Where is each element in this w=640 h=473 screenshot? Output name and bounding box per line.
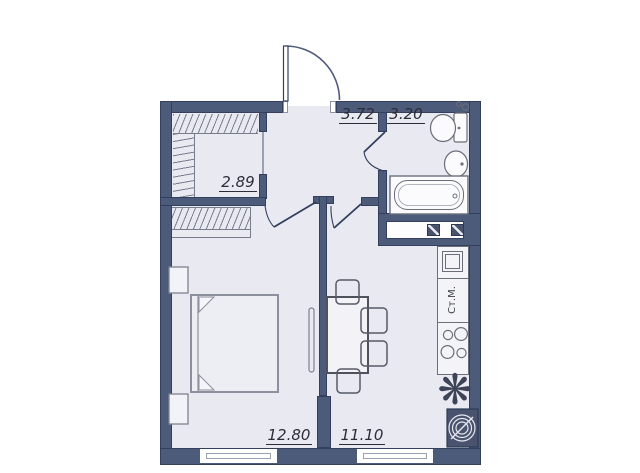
bedroom-window-frame [206,453,271,459]
label-bedroom-area: 12.80 [260,426,318,444]
label-dressing-room-area: 2.89 [211,173,265,191]
entry-jamb-left [283,101,288,113]
wall-mid-left [160,197,266,206]
wall-room-divider-lower [317,396,331,448]
dressing-door-line [262,132,264,174]
wardrobe-rail-left [173,134,195,200]
label-washing-machine: Ст.М. [447,270,459,330]
wall-dressing-right-top [259,112,267,132]
label-kitchen-area: 11.10 [333,426,391,444]
wall-right [469,101,481,465]
kitchen-window-frame [363,453,427,459]
label-bathroom-area: 3.20 [379,105,433,123]
entry-door-icon [284,46,340,101]
wardrobe-rail-left-edge [194,134,195,198]
bedroom-wardrobe-hatch [169,208,250,229]
kitchen-sink-cabinet-inner [445,254,460,269]
label-hallway-area: 3.72 [331,105,385,123]
floor-plan: ❋ [0,0,640,473]
wardrobe-rail-top [173,114,258,134]
vent-icon [451,224,464,236]
wall-left [160,101,172,465]
wall-room-divider-upper [319,196,327,396]
bedroom-wardrobe-shelf [168,229,251,230]
vent-icon [427,224,440,236]
wall-bathroom-bottom [378,170,387,214]
